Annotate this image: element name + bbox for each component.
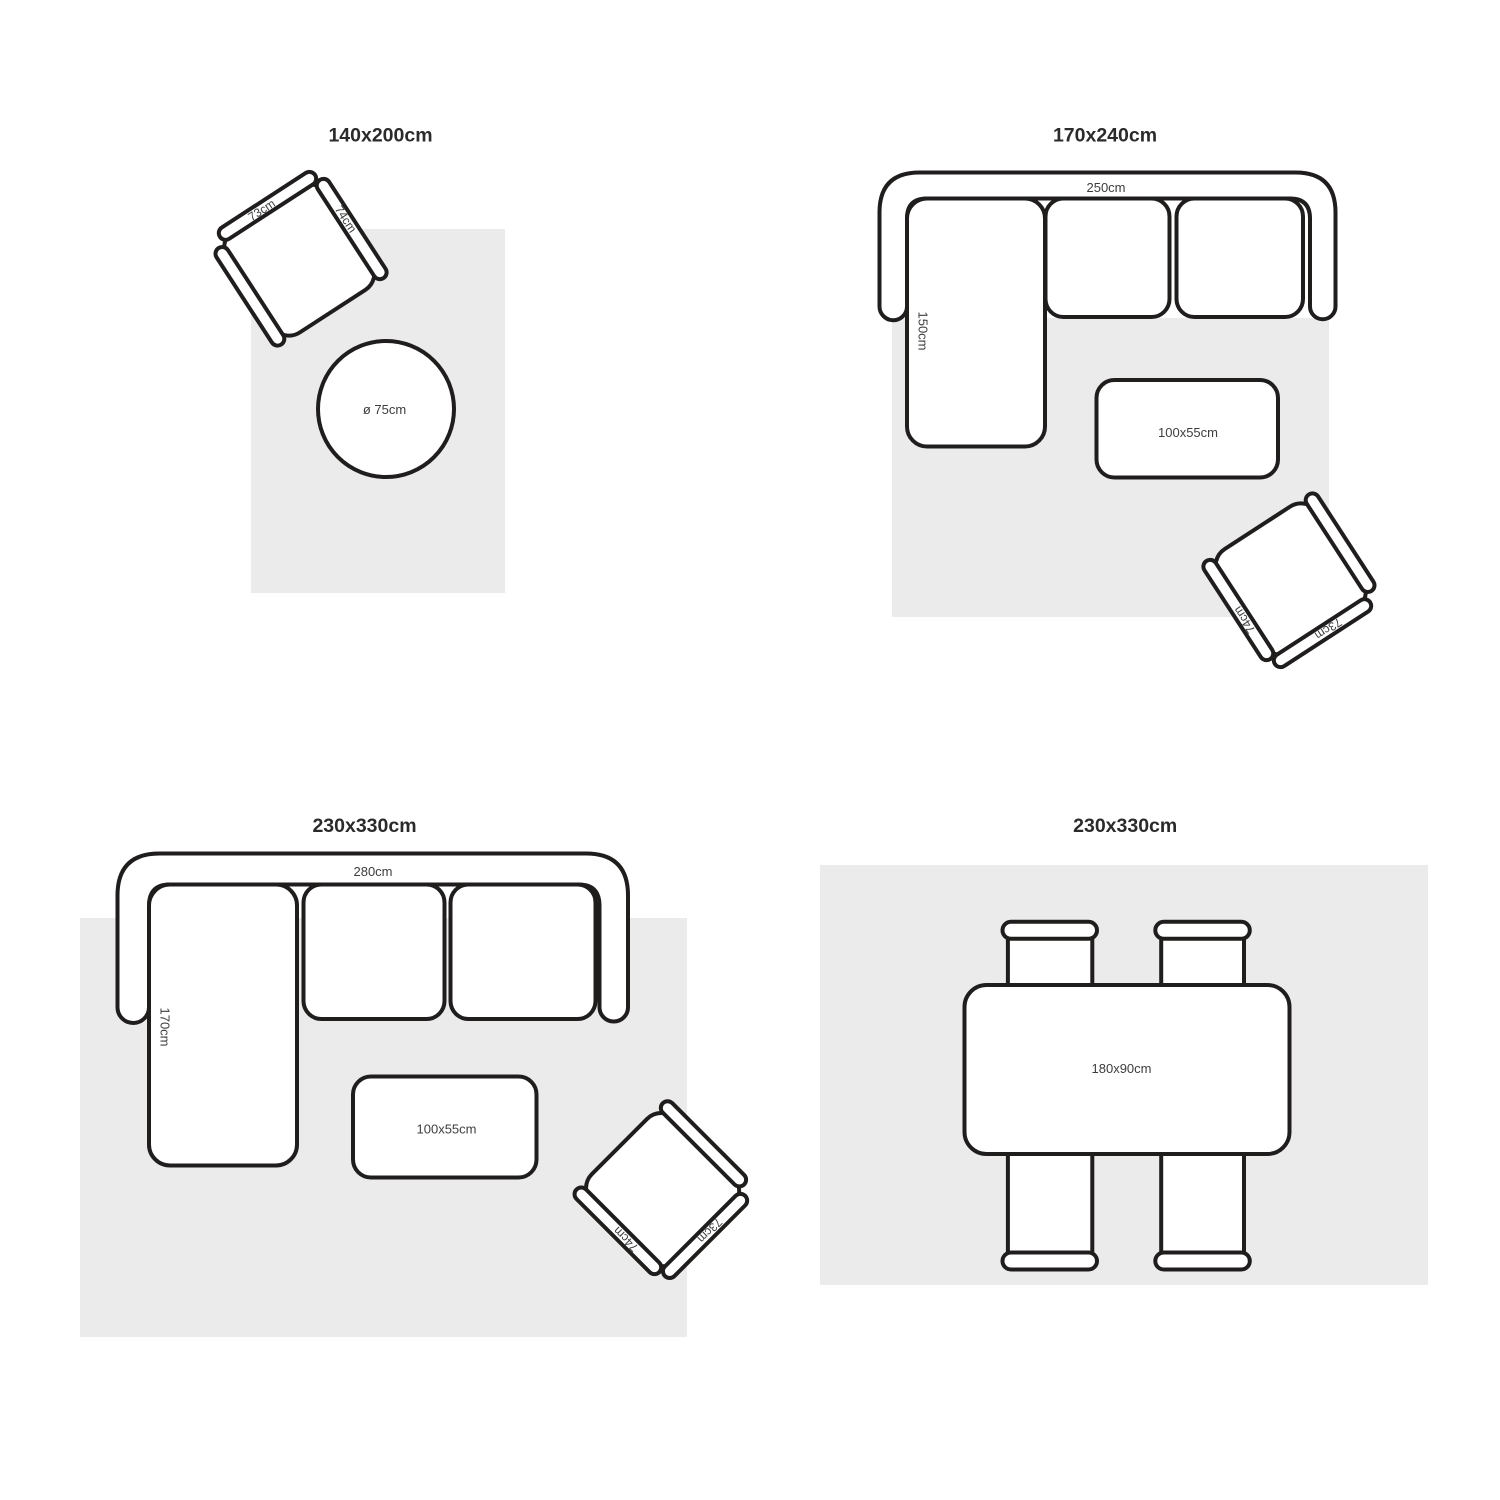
svg-text:180x90cm: 180x90cm — [1092, 1061, 1152, 1076]
svg-text:100x55cm: 100x55cm — [1158, 425, 1218, 440]
svg-text:150cm: 150cm — [916, 311, 931, 350]
svg-text:170x240cm: 170x240cm — [1053, 125, 1157, 147]
svg-text:170cm: 170cm — [158, 1007, 173, 1046]
svg-text:230x330cm: 230x330cm — [312, 815, 416, 837]
svg-text:280cm: 280cm — [353, 864, 392, 879]
svg-text:250cm: 250cm — [1086, 180, 1125, 195]
svg-text:ø 75cm: ø 75cm — [363, 402, 406, 417]
svg-text:140x200cm: 140x200cm — [328, 124, 432, 146]
svg-text:230x330cm: 230x330cm — [1073, 815, 1177, 837]
svg-text:100x55cm: 100x55cm — [417, 1122, 477, 1137]
